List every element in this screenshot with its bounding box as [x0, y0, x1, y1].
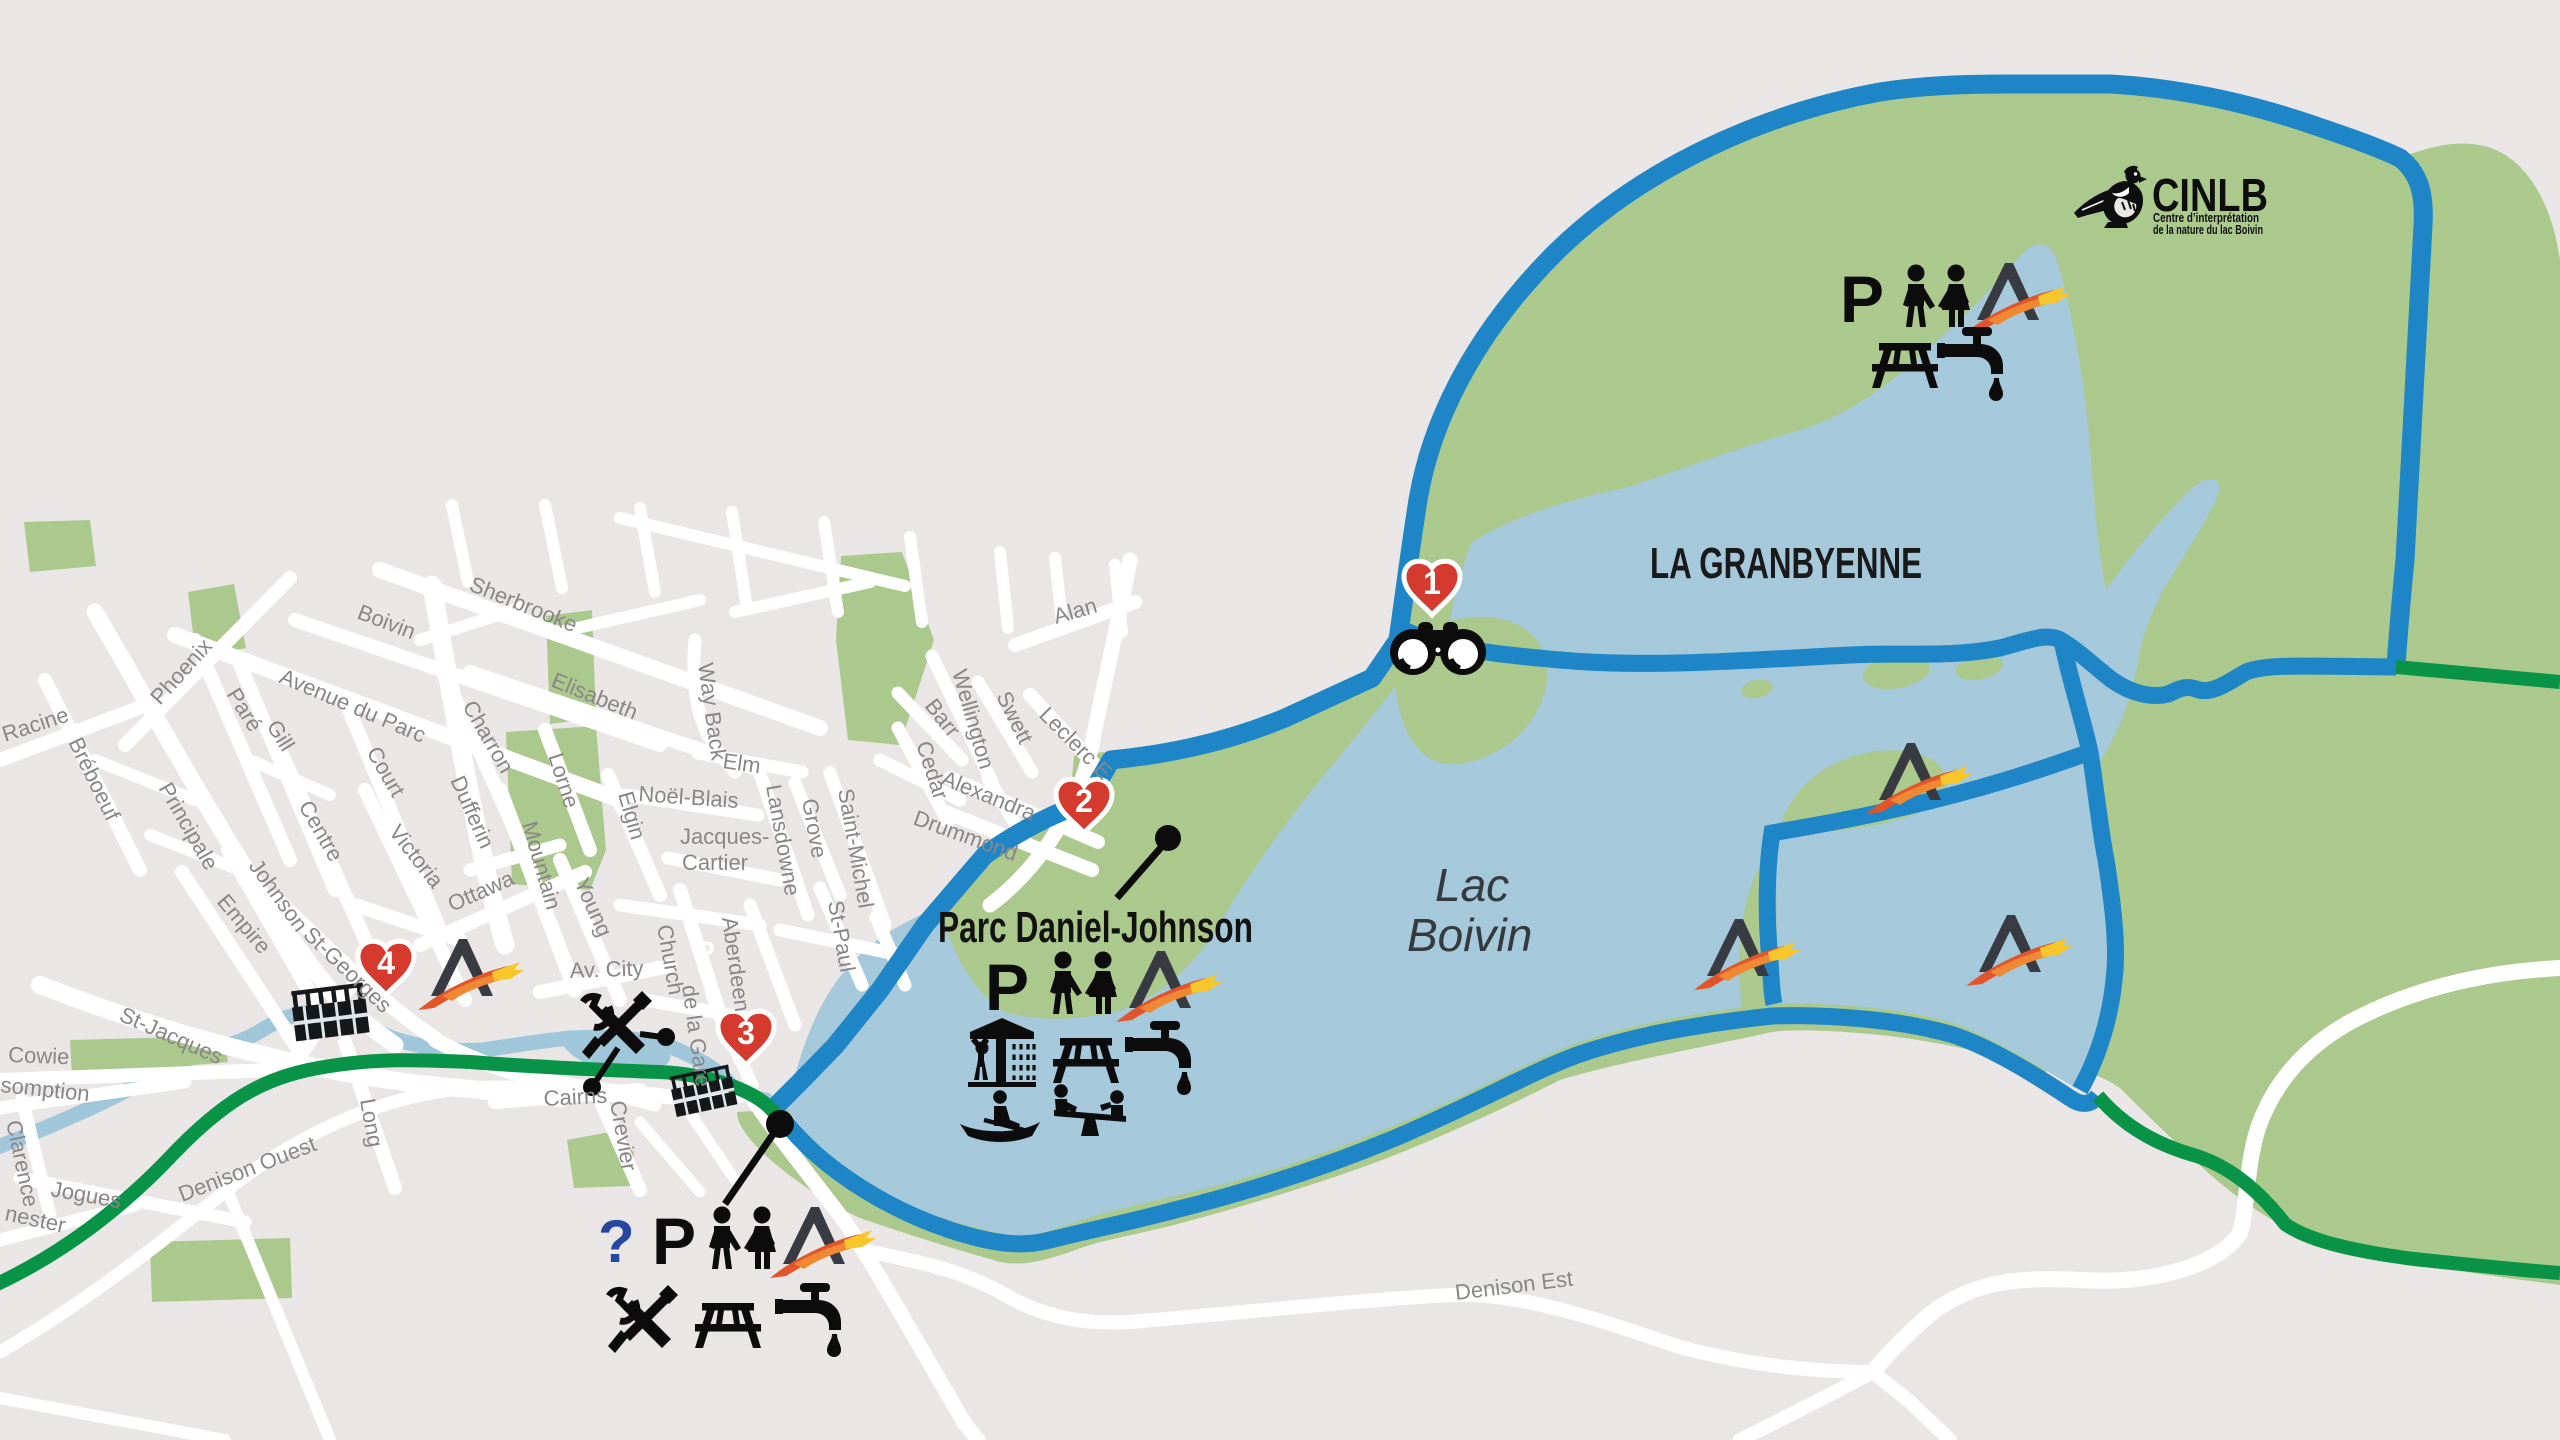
svg-text:?: ?	[598, 1208, 635, 1275]
svg-text:2: 2	[1075, 783, 1093, 819]
svg-text:Boivin: Boivin	[1407, 909, 1532, 961]
svg-text:P: P	[1840, 262, 1884, 336]
svg-text:P: P	[695, 936, 715, 969]
svg-text:LA GRANBYENNE: LA GRANBYENNE	[1650, 539, 1922, 588]
svg-text:3: 3	[737, 1015, 755, 1051]
svg-text:Cartier: Cartier	[682, 850, 748, 875]
svg-text:4: 4	[377, 945, 395, 981]
svg-text:Parc Daniel-Johnson: Parc Daniel-Johnson	[938, 903, 1253, 952]
svg-text:de la nature du lac Boivin: de la nature du lac Boivin	[2153, 223, 2263, 237]
svg-text:Elm: Elm	[721, 748, 762, 778]
svg-text:P: P	[652, 1204, 696, 1278]
svg-text:Av. City: Av. City	[569, 955, 644, 983]
svg-text:Cairns: Cairns	[543, 1083, 608, 1111]
svg-text:P: P	[985, 950, 1029, 1024]
svg-text:Cowie: Cowie	[8, 1042, 70, 1069]
svg-text:1: 1	[1423, 565, 1441, 601]
svg-text:Jacques-: Jacques-	[680, 824, 769, 849]
svg-text:Lac: Lac	[1435, 859, 1509, 911]
